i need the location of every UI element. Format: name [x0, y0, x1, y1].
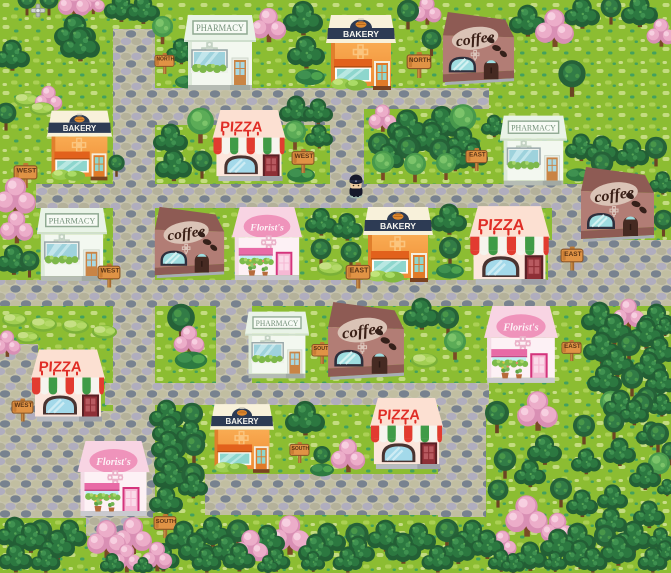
svg-text:EAST: EAST: [564, 343, 581, 350]
svg-text:NORTH: NORTH: [409, 57, 432, 64]
svg-text:EAST: EAST: [469, 151, 486, 158]
svg-text:EAST: EAST: [350, 268, 369, 275]
svg-text:WEST: WEST: [101, 268, 120, 275]
svg-text:SOUTH: SOUTH: [156, 519, 176, 525]
svg-text:WEST: WEST: [17, 168, 37, 175]
svg-text:WEST: WEST: [295, 153, 314, 160]
svg-text:NORTH: NORTH: [156, 57, 174, 63]
svg-text:SOUTH: SOUTH: [292, 446, 310, 452]
svg-text:WEST: WEST: [14, 402, 32, 409]
svg-text:EAST: EAST: [564, 251, 581, 258]
